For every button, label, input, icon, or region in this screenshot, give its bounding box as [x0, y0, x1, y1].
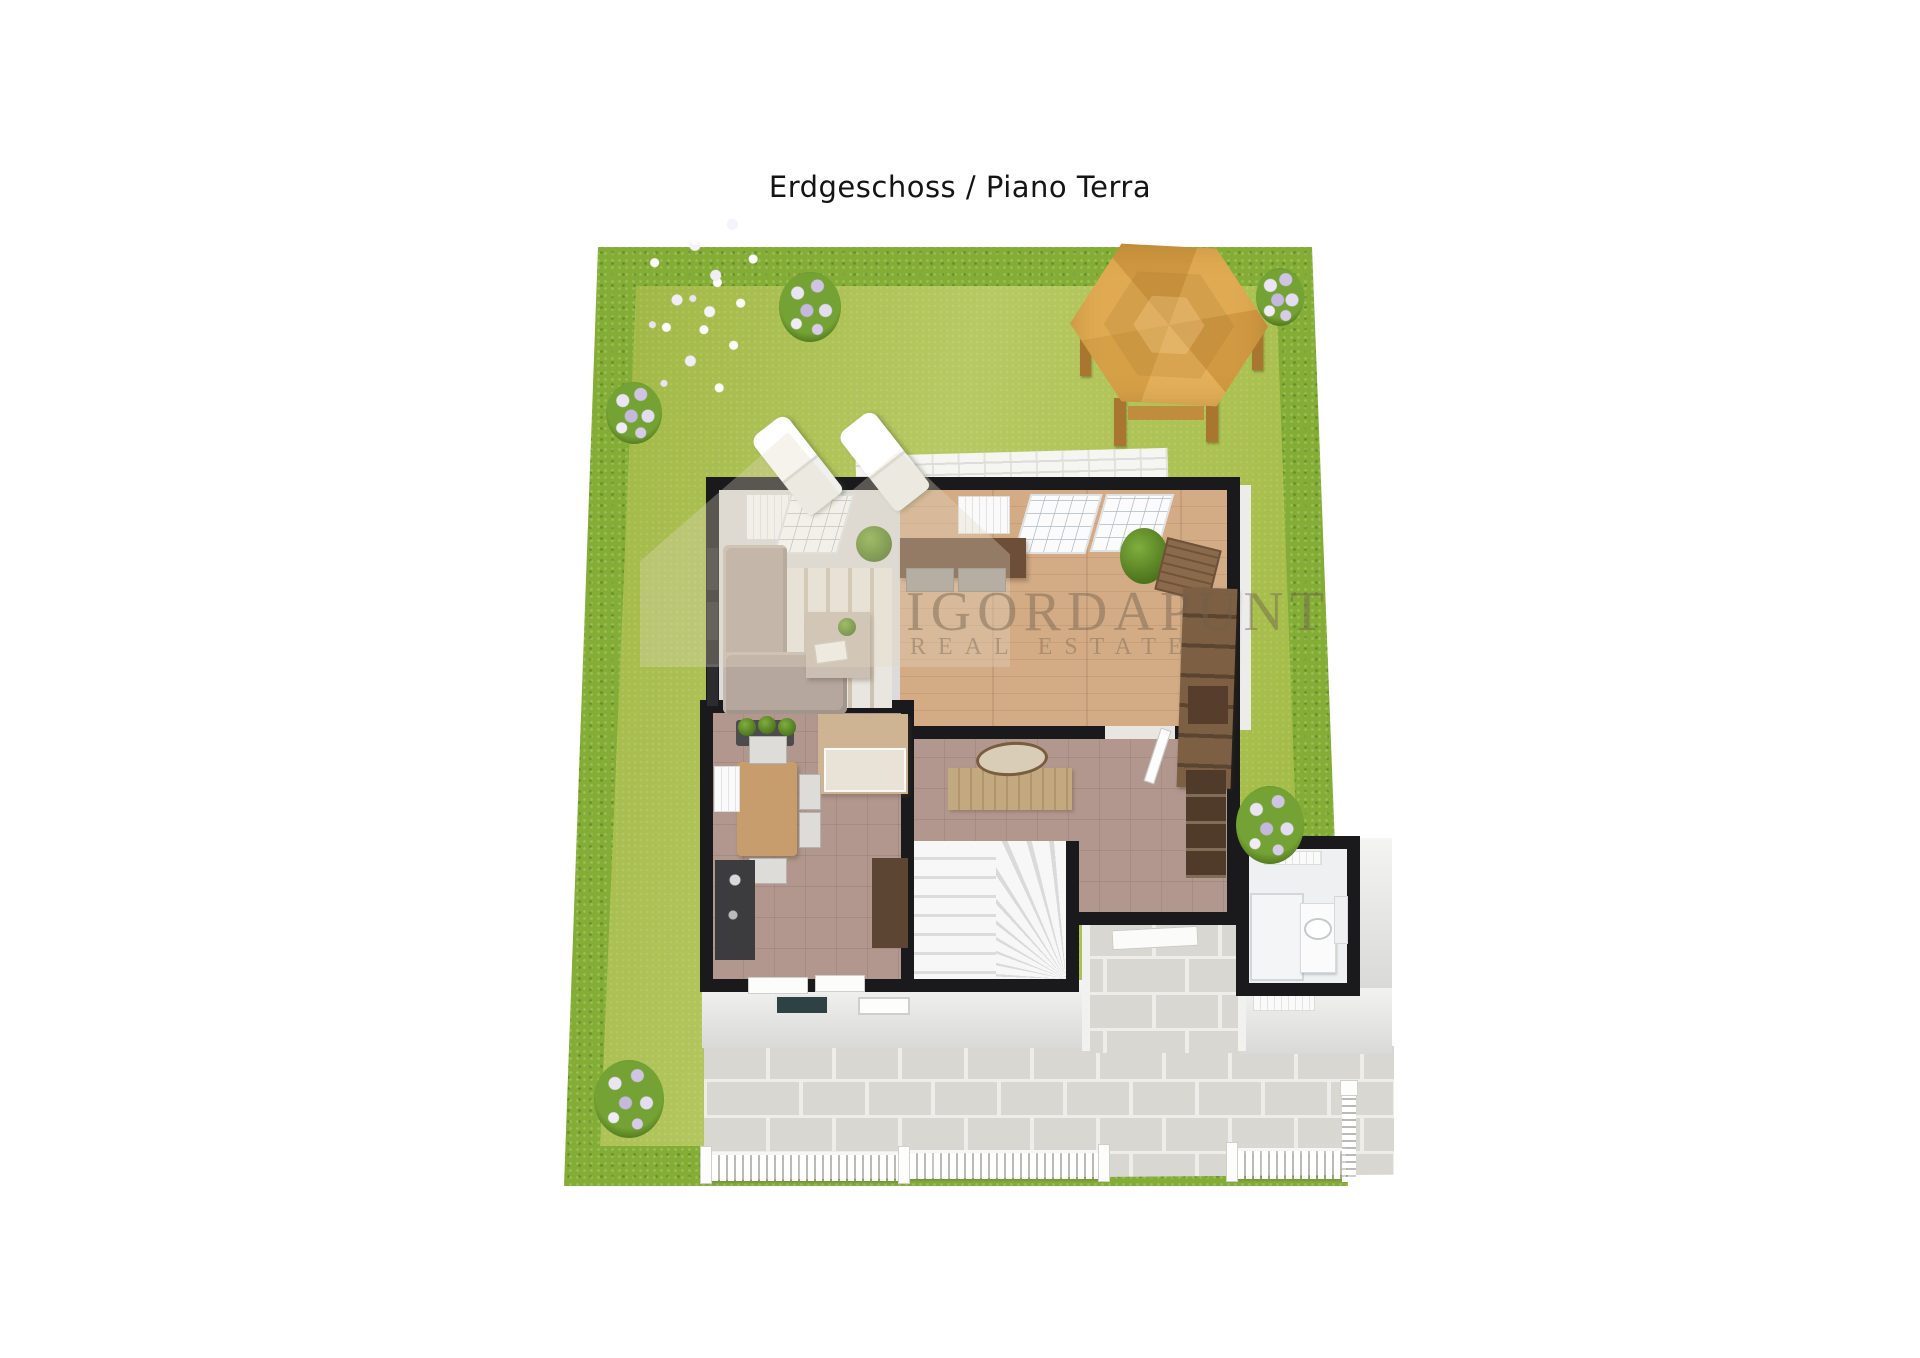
toilet — [1334, 896, 1348, 944]
watermark-tagline: REAL ESTATE — [910, 634, 1195, 661]
floor-plan-canvas: Erdgeschoss / Piano Terra — [0, 0, 1920, 1358]
flower-bush — [594, 1060, 664, 1138]
fence-post — [700, 1146, 712, 1184]
kitchen-window — [748, 977, 808, 994]
page-title: Erdgeschoss / Piano Terra — [0, 170, 1920, 204]
herb-pot — [758, 716, 776, 734]
facade-window-dark — [775, 995, 829, 1015]
chair — [799, 812, 821, 848]
wall-stair-bottom — [901, 979, 1079, 992]
flower-bush — [779, 272, 841, 342]
picket-fence-side — [1342, 1086, 1356, 1182]
kitchen-table — [737, 762, 797, 856]
chair — [799, 774, 821, 810]
fence-post — [1098, 1144, 1110, 1182]
window-slit — [707, 664, 718, 706]
chair — [749, 736, 787, 764]
kitchen-window — [815, 975, 865, 992]
coat-rack — [1186, 770, 1226, 878]
wall-hall-bottom — [1079, 912, 1240, 925]
fence-post — [1226, 1142, 1238, 1182]
wall-west-kitchen — [700, 700, 713, 992]
fence-post — [1340, 1080, 1358, 1096]
flower-bush — [1236, 786, 1304, 864]
flower-bush — [1256, 268, 1304, 326]
fence-post — [898, 1146, 910, 1184]
herb-pot — [738, 718, 756, 736]
picket-fence — [704, 1152, 902, 1181]
picket-fence — [1230, 1148, 1346, 1179]
brown-cabinet — [872, 858, 908, 948]
herb-pot — [778, 718, 796, 736]
bathroom-facade-window — [1253, 994, 1315, 1011]
facade-window — [858, 997, 910, 1015]
sink-basin — [1304, 918, 1332, 940]
kitchen-counter — [715, 860, 755, 960]
gazebo-shelf — [1128, 406, 1204, 420]
buffet-glass-doors — [824, 748, 906, 792]
flower-bush — [606, 382, 662, 444]
flower-shrub — [640, 296, 760, 408]
picket-fence — [910, 1150, 1102, 1179]
dark-cabinet — [1188, 686, 1228, 724]
wall-unit — [714, 766, 740, 812]
staircase — [914, 841, 1066, 979]
wall-stair-divider — [1066, 841, 1079, 992]
shower — [1250, 893, 1304, 981]
gazebo-leg — [1114, 398, 1126, 446]
